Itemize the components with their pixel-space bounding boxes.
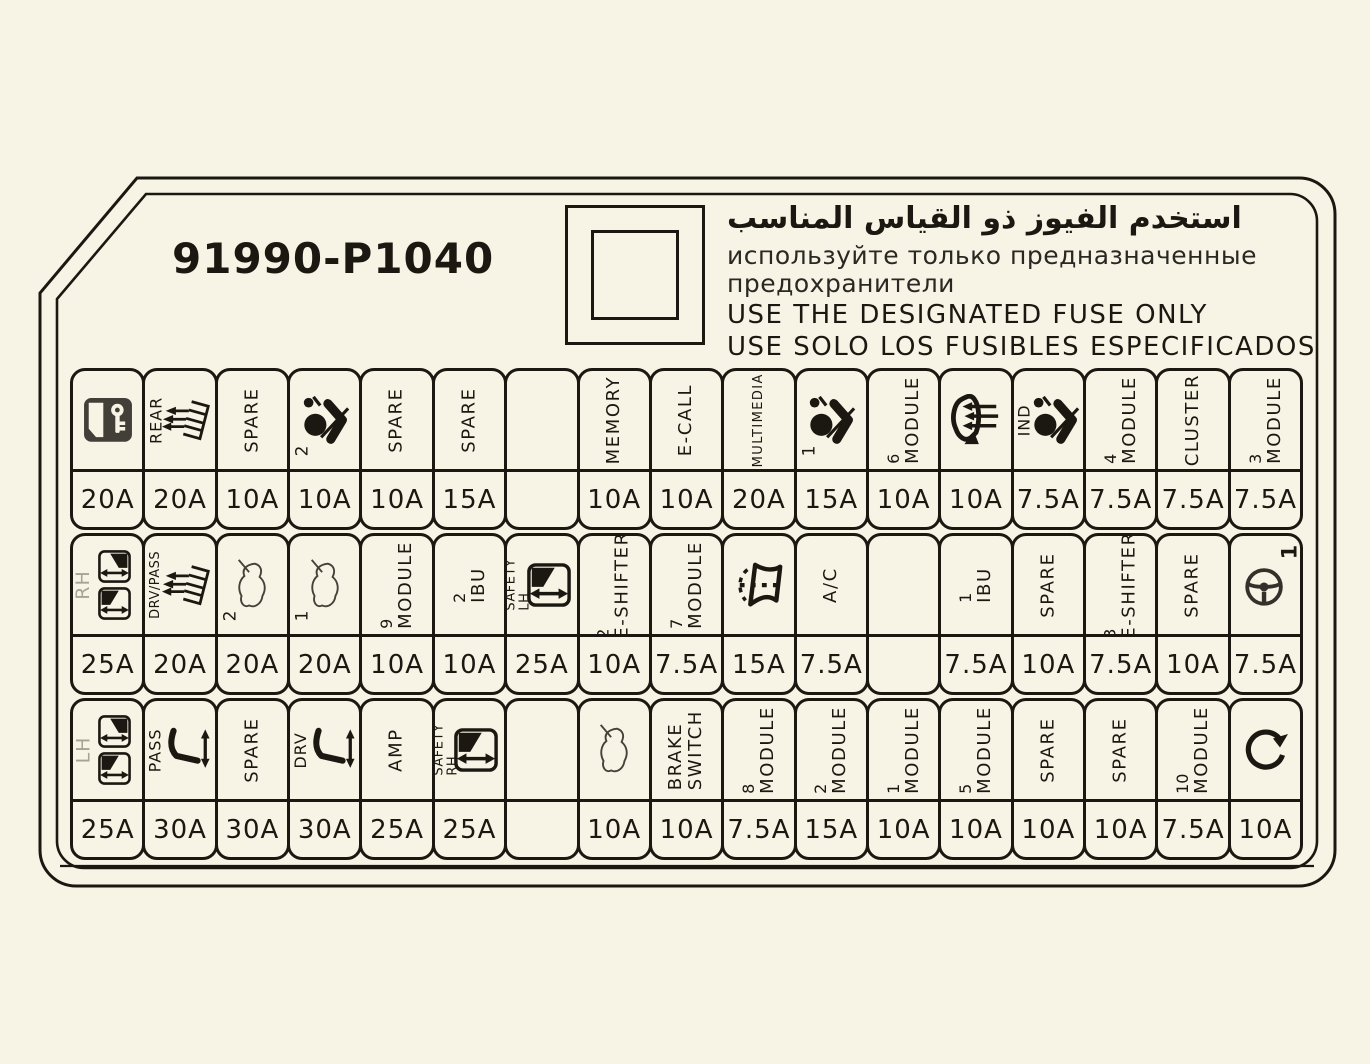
fuse-cell-r3c13: 5MODULE10A: [938, 698, 1013, 860]
fuse-cell-r3c3: SPARE30A: [215, 698, 290, 860]
fuse-icon-area: 2IBU: [435, 536, 504, 634]
fuse-amp-rating: 7.5A: [1086, 469, 1155, 527]
fuse-icon-area: SPARE: [218, 371, 287, 469]
fuse-label: 9MODULE: [362, 536, 431, 634]
fuse-side-label: RH: [73, 536, 101, 634]
fuse-icon-area: [941, 371, 1010, 469]
fuse-cell-r1c16: CLUSTER7.5A: [1155, 368, 1230, 530]
fuse-cell-r2c17: 17.5A: [1228, 533, 1303, 695]
fuse-cell-r3c8: 10A: [577, 698, 652, 860]
fuse-label: MULTIMEDIA: [724, 371, 793, 469]
fuse-amp-rating: 25A: [73, 799, 142, 857]
fuse-label: 2MODULE: [797, 701, 866, 799]
fuse-amp-rating: 20A: [290, 634, 359, 692]
fuse-icon-area: SPARE: [1086, 701, 1155, 799]
fuse-side-label: DRV: [290, 701, 318, 799]
fuse-icon-area: LH: [73, 701, 142, 799]
fuse-amp-rating: 20A: [218, 634, 287, 692]
fuse-amp-rating: 20A: [145, 634, 214, 692]
fuse-amp-rating: 10A: [869, 799, 938, 857]
fuse-icon-area: 2MODULE: [797, 701, 866, 799]
fuse-amp-rating: 25A: [435, 799, 504, 857]
fuse-cell-r1c13: 10A: [938, 368, 1013, 530]
fuse-label: SPARE: [1014, 536, 1083, 634]
fuse-amp-rating: 10A: [941, 799, 1010, 857]
fuse-cell-r2c10: 15A: [721, 533, 796, 695]
fuse-icon-area: 1IBU: [941, 536, 1010, 634]
fuse-label: SPARE: [435, 371, 504, 469]
fuse-icon-area: [724, 536, 793, 634]
fuse-amp-rating: 10A: [1231, 799, 1300, 857]
fuse-cell-r3c12: 1MODULE10A: [866, 698, 941, 860]
fuse-cell-r2c11: A/C7.5A: [794, 533, 869, 695]
fuse-label: SPARE: [362, 371, 431, 469]
fuse-amp-rating: 15A: [797, 799, 866, 857]
fuse-icon-area: 3E-SHIFTER: [1086, 536, 1155, 634]
fuse-icon-area: [507, 701, 576, 799]
door-lock-icon: [73, 371, 142, 469]
fuse-cell-r2c3: 220A: [215, 533, 290, 695]
fuse-cell-r1c15: 4MODULE7.5A: [1083, 368, 1158, 530]
fuse-label: SPARE: [218, 371, 287, 469]
fuse-icon-area: 2E-SHIFTER: [580, 536, 649, 634]
fuse-icon-area: 1: [797, 371, 866, 469]
fuse-label: CLUSTER: [1158, 371, 1227, 469]
fuse-icon-area: SPARE: [1014, 701, 1083, 799]
fuse-cell-r2c15: 3E-SHIFTER7.5A: [1083, 533, 1158, 695]
fuse-amp-rating: 7.5A: [1231, 634, 1300, 692]
fuse-amp-rating: 7.5A: [1158, 469, 1227, 527]
fuse-icon-area: MULTIMEDIA: [724, 371, 793, 469]
car-silhouette-icon: [580, 701, 649, 799]
fuse-amp-rating: 15A: [797, 469, 866, 527]
fuse-cell-r2c7: SAFETYLH25A: [504, 533, 579, 695]
fuse-cell-r2c9: 7MODULE7.5A: [649, 533, 724, 695]
fuse-grid: 20AREAR20ASPARE10A210ASPARE10ASPARE15AME…: [0, 0, 1370, 1064]
fuse-cell-r3c17: 10A: [1228, 698, 1303, 860]
washer-icon: [724, 536, 793, 634]
fuse-label: 7MODULE: [652, 536, 721, 634]
fuse-cell-r1c6: SPARE15A: [432, 368, 507, 530]
fuse-icon-area: 5MODULE: [941, 701, 1010, 799]
fuse-label: 8MODULE: [724, 701, 793, 799]
fuse-label: 2E-SHIFTER: [580, 536, 649, 634]
fuse-icon-area: MEMORY: [580, 371, 649, 469]
fuse-cell-r1c3: SPARE10A: [215, 368, 290, 530]
fuse-cell-r3c7: [504, 698, 579, 860]
fuse-amp-rating: 7.5A: [724, 799, 793, 857]
fuse-cell-r3c1: LH25A: [70, 698, 145, 860]
fuse-icon-area: 6MODULE: [869, 371, 938, 469]
fuse-label: SPARE: [1158, 536, 1227, 634]
fuse-cell-r2c16: SPARE10A: [1155, 533, 1230, 695]
fuse-side-label: REAR: [145, 371, 173, 469]
fuse-box-cover: 91990-P1040 استخدم الفيوز ذو القياس المن…: [0, 0, 1370, 1064]
fuse-amp-rating: 15A: [435, 469, 504, 527]
fuse-icon-area: SAFETYRH: [435, 701, 504, 799]
fuse-amp-rating: [869, 634, 938, 692]
fuse-cell-r1c10: MULTIMEDIA20A: [721, 368, 796, 530]
fuse-amp-rating: 10A: [1086, 799, 1155, 857]
fuse-side-label: IND: [1014, 371, 1042, 469]
fuse-cell-r1c7: [504, 368, 579, 530]
fuse-icon-area: 10MODULE: [1158, 701, 1227, 799]
fuse-cell-r3c11: 2MODULE15A: [794, 698, 869, 860]
fuse-amp-rating: 20A: [145, 469, 214, 527]
fuse-cell-r3c15: SPARE10A: [1083, 698, 1158, 860]
fuse-amp-rating: 10A: [362, 469, 431, 527]
fuse-cell-r1c2: REAR20A: [142, 368, 217, 530]
fuse-icon-area: 1: [290, 536, 359, 634]
fuse-amp-rating: 7.5A: [1014, 469, 1083, 527]
fuse-cell-r2c5: 9MODULE10A: [359, 533, 434, 695]
rotate-arrow-icon: [1231, 701, 1300, 799]
fuse-icon-area: 9MODULE: [362, 536, 431, 634]
fuse-cell-r1c9: E-CALL10A: [649, 368, 724, 530]
fuse-amp-rating: 10A: [580, 634, 649, 692]
fuse-cell-r1c5: SPARE10A: [359, 368, 434, 530]
fuse-amp-rating: 25A: [507, 634, 576, 692]
fuse-label: 6MODULE: [869, 371, 938, 469]
fuse-amp-rating: 7.5A: [1086, 634, 1155, 692]
fuse-icon-area: SPARE: [1014, 536, 1083, 634]
fuse-label: 3E-SHIFTER: [1086, 536, 1155, 634]
fuse-icon-area: SPARE: [362, 371, 431, 469]
fuse-amp-rating: 10A: [652, 469, 721, 527]
fuse-amp-rating: 20A: [73, 469, 142, 527]
fuse-cell-r3c4: DRV30A: [287, 698, 362, 860]
fuse-amp-rating: 10A: [941, 469, 1010, 527]
fuse-icon-area: [73, 371, 142, 469]
fuse-label: SPARE: [218, 701, 287, 799]
fuse-label: 1IBU: [941, 536, 1010, 634]
fuse-amp-rating: 25A: [73, 634, 142, 692]
fuse-icon-area: 2: [218, 536, 287, 634]
fuse-cell-r1c14: IND7.5A: [1011, 368, 1086, 530]
fuse-amp-rating: 10A: [362, 634, 431, 692]
fuse-label: E-CALL: [652, 371, 721, 469]
fuse-cell-r3c2: PASS30A: [142, 698, 217, 860]
fuse-side-label: LH: [73, 701, 101, 799]
fuse-label: 4MODULE: [1086, 371, 1155, 469]
fuse-label: 3MODULE: [1231, 371, 1300, 469]
fuse-amp-rating: 10A: [1014, 634, 1083, 692]
fuse-cell-r3c16: 10MODULE7.5A: [1155, 698, 1230, 860]
fuse-amp-rating: 10A: [218, 469, 287, 527]
fuse-label: BRAKESWITCH: [652, 701, 721, 799]
fuse-amp-rating: 10A: [580, 469, 649, 527]
fuse-icon-area: 7MODULE: [652, 536, 721, 634]
fuse-icon-area: CLUSTER: [1158, 371, 1227, 469]
fuse-amp-rating: 10A: [869, 469, 938, 527]
fuse-icon-area: [869, 536, 938, 634]
fuse-amp-rating: 7.5A: [1231, 469, 1300, 527]
fuse-cell-r2c8: 2E-SHIFTER10A: [577, 533, 652, 695]
fuse-cell-r3c5: AMP25A: [359, 698, 434, 860]
fuse-amp-rating: 10A: [652, 799, 721, 857]
fuse-cell-r1c1: 20A: [70, 368, 145, 530]
fuse-number-label: 1: [799, 446, 819, 457]
fuse-cell-r3c9: BRAKESWITCH10A: [649, 698, 724, 860]
fuse-side-label: SAFETYLH: [507, 536, 535, 634]
fuse-amp-rating: 25A: [362, 799, 431, 857]
fuse-icon-area: SAFETYLH: [507, 536, 576, 634]
fuse-icon-area: A/C: [797, 536, 866, 634]
fuse-cell-r1c11: 115A: [794, 368, 869, 530]
fuse-cell-r2c4: 120A: [287, 533, 362, 695]
fuse-cell-r2c14: SPARE10A: [1011, 533, 1086, 695]
fuse-label: MEMORY: [580, 371, 649, 469]
fuse-icon-area: E-CALL: [652, 371, 721, 469]
fuse-amp-rating: 30A: [218, 799, 287, 857]
fuse-icon-area: 3MODULE: [1231, 371, 1300, 469]
fuse-side-label: DRV/PASS: [145, 536, 173, 634]
fuse-cell-r3c6: SAFETYRH25A: [432, 698, 507, 860]
fuse-label: SPARE: [1086, 701, 1155, 799]
fuse-icon-area: PASS: [145, 701, 214, 799]
fuse-cell-r1c8: MEMORY10A: [577, 368, 652, 530]
fuse-icon-area: 2: [290, 371, 359, 469]
fuse-amp-rating: 10A: [580, 799, 649, 857]
fuse-icon-area: AMP: [362, 701, 431, 799]
fuse-icon-area: SPARE: [435, 371, 504, 469]
fuse-amp-rating: [507, 799, 576, 857]
fuse-amp-rating: 30A: [145, 799, 214, 857]
fuse-row: LH25APASS30ASPARE30ADRV30AAMP25ASAFETYRH…: [70, 698, 1303, 860]
fuse-icon-area: [580, 701, 649, 799]
fuse-label: 10MODULE: [1158, 701, 1227, 799]
fuse-amp-rating: 7.5A: [1158, 799, 1227, 857]
fuse-amp-rating: 10A: [1014, 799, 1083, 857]
fuse-cell-r3c14: SPARE10A: [1011, 698, 1086, 860]
fuse-cell-r1c17: 3MODULE7.5A: [1228, 368, 1303, 530]
fuse-row: RH25ADRV/PASS20A220A120A9MODULE10A2IBU10…: [70, 533, 1303, 695]
fuse-cell-r2c6: 2IBU10A: [432, 533, 507, 695]
fuse-icon-area: SPARE: [1158, 536, 1227, 634]
fuse-icon-area: 4MODULE: [1086, 371, 1155, 469]
fuse-label: 5MODULE: [941, 701, 1010, 799]
fuse-amp-rating: 10A: [1158, 634, 1227, 692]
fuse-icon-area: [507, 371, 576, 469]
fuse-icon-area: 8MODULE: [724, 701, 793, 799]
fuse-cell-r2c1: RH25A: [70, 533, 145, 695]
fuse-icon-area: DRV/PASS: [145, 536, 214, 634]
fuse-number-label: 2: [292, 446, 312, 457]
fuse-amp-rating: 15A: [724, 634, 793, 692]
fuse-amp-rating: 7.5A: [941, 634, 1010, 692]
fuse-cell-r1c12: 6MODULE10A: [866, 368, 941, 530]
fuse-number-label: 2: [220, 611, 240, 622]
fuse-icon-area: IND: [1014, 371, 1083, 469]
fuse-amp-rating: 10A: [435, 634, 504, 692]
fuse-label: SPARE: [1014, 701, 1083, 799]
fuse-amp-rating: 30A: [290, 799, 359, 857]
fuse-amp-rating: [507, 469, 576, 527]
fuse-icon-area: [1231, 701, 1300, 799]
fuse-icon-area: 1: [1231, 536, 1300, 634]
fuse-label: A/C: [797, 536, 866, 634]
fuse-amp-rating: 7.5A: [797, 634, 866, 692]
fuse-icon-area: 1MODULE: [869, 701, 938, 799]
fuse-icon-area: BRAKESWITCH: [652, 701, 721, 799]
fuse-cell-r2c12: [866, 533, 941, 695]
fuse-cell-r2c2: DRV/PASS20A: [142, 533, 217, 695]
fuse-icon-area: RH: [73, 536, 142, 634]
fuse-number-label: 1: [292, 611, 312, 622]
fuse-row: 20AREAR20ASPARE10A210ASPARE10ASPARE15AME…: [70, 368, 1303, 530]
fuse-icon-area: DRV: [290, 701, 359, 799]
fuse-side-label: PASS: [145, 701, 173, 799]
fuse-label: 2IBU: [435, 536, 504, 634]
fuse-label: 1MODULE: [869, 701, 938, 799]
fuse-label: AMP: [362, 701, 431, 799]
fuse-cell-r3c10: 8MODULE7.5A: [721, 698, 796, 860]
heated-mirror-icon: [941, 371, 1010, 469]
fuse-amp-rating: 10A: [290, 469, 359, 527]
fuse-side-label: SAFETYRH: [435, 701, 463, 799]
fuse-amp-rating: 7.5A: [652, 634, 721, 692]
fuse-icon-area: SPARE: [218, 701, 287, 799]
fuse-cell-r1c4: 210A: [287, 368, 362, 530]
fuse-amp-rating: 20A: [724, 469, 793, 527]
fuse-number-label: 1: [1278, 545, 1300, 560]
fuse-icon-area: REAR: [145, 371, 214, 469]
fuse-cell-r2c13: 1IBU7.5A: [938, 533, 1013, 695]
